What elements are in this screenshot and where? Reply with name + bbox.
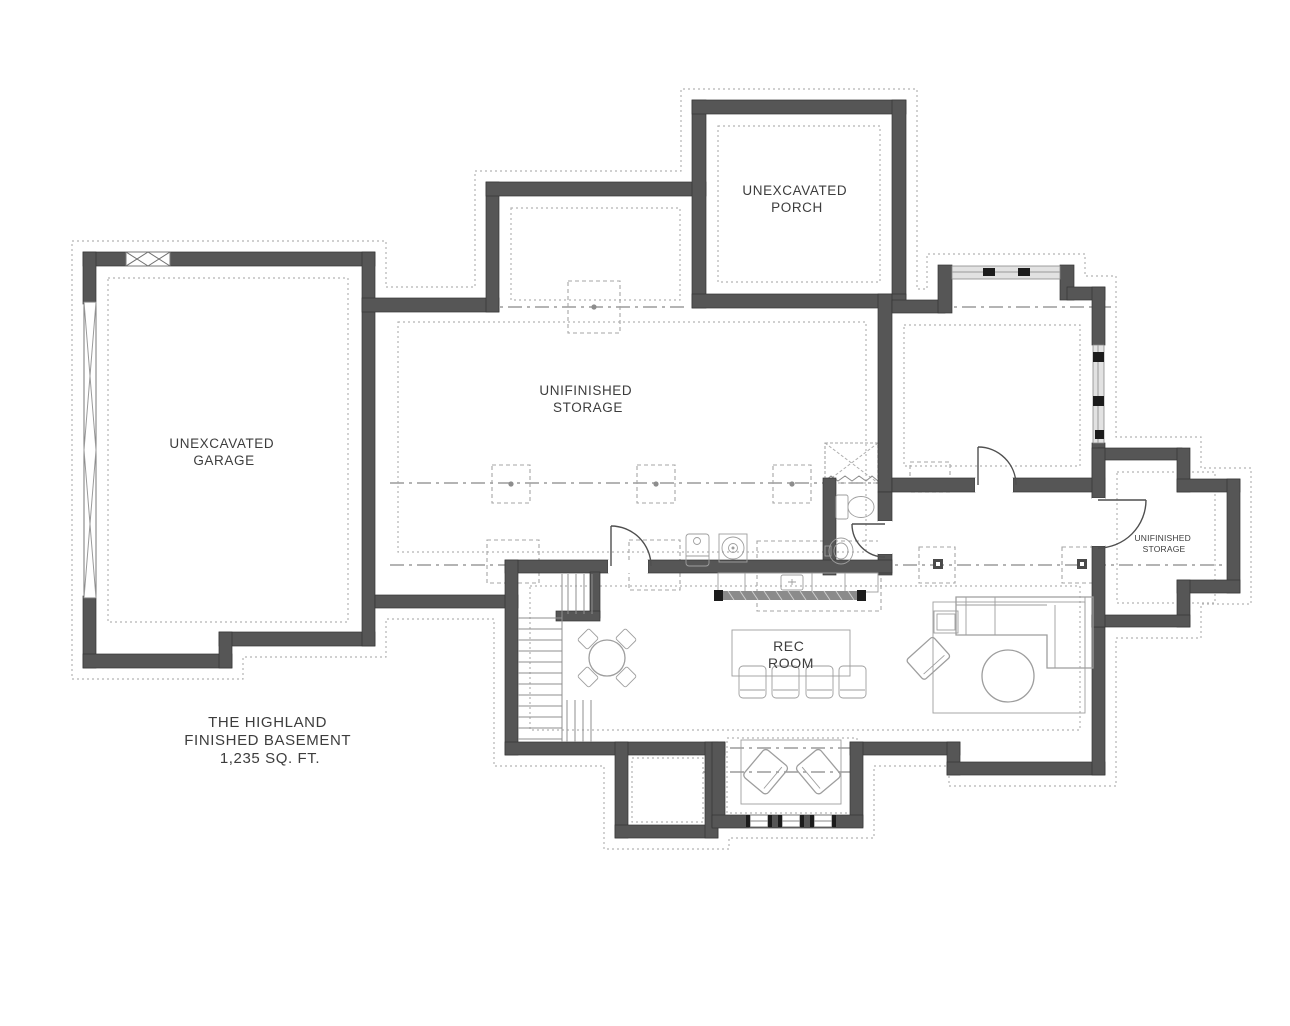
right-wall-window bbox=[1093, 345, 1104, 443]
room-label-garage: UNEXCAVATED GARAGE bbox=[169, 436, 278, 468]
sump-pad bbox=[825, 443, 878, 483]
garage-side-window bbox=[84, 302, 96, 598]
garage-top-window bbox=[126, 252, 170, 266]
stair-treads-upper-flight bbox=[568, 574, 592, 614]
column-footing bbox=[637, 465, 675, 503]
side-table-top bbox=[937, 614, 955, 630]
stair-treads-lower-flight bbox=[567, 700, 591, 742]
bar-counter bbox=[718, 573, 878, 592]
floor-drain bbox=[1077, 559, 1087, 569]
stair-treads-down-flight bbox=[518, 574, 562, 742]
bar-front-halfwall bbox=[714, 590, 866, 601]
game-table bbox=[577, 628, 636, 687]
footing-small-room bbox=[632, 758, 703, 822]
living-area bbox=[906, 597, 1093, 713]
toilet bbox=[836, 495, 874, 519]
floor-drain bbox=[933, 559, 943, 569]
topright-room-door bbox=[975, 447, 1016, 492]
column-footing bbox=[773, 465, 811, 503]
bay-window bbox=[952, 266, 1060, 279]
footing-topright-room bbox=[904, 325, 1080, 466]
staircase bbox=[518, 574, 592, 742]
bar-area bbox=[714, 573, 878, 698]
bay-bottom-windows bbox=[746, 815, 836, 827]
footing-storage-main bbox=[398, 322, 866, 552]
room-label-storage-main: UNIFINISHED STORAGE bbox=[539, 383, 636, 415]
floor-plan-page: UNEXCAVATED GARAGE UNEXCAVATED PORCH UNI… bbox=[0, 0, 1290, 1026]
room-label-rec-room: REC ROOM bbox=[768, 638, 814, 671]
floor-plan-svg: UNEXCAVATED GARAGE UNEXCAVATED PORCH UNI… bbox=[0, 0, 1290, 1026]
bar-sink bbox=[781, 575, 803, 590]
furnace bbox=[719, 534, 747, 562]
room-label-storage-right: UNIFINISHED STORAGE bbox=[1134, 533, 1193, 554]
room-label-porch: UNEXCAVATED PORCH bbox=[742, 183, 851, 215]
column-footing bbox=[492, 465, 530, 503]
sectional-sofa bbox=[956, 597, 1093, 668]
plan-title: THE HIGHLAND FINISHED BASEMENT 1,235 SQ.… bbox=[184, 714, 355, 767]
accent-chair bbox=[906, 636, 951, 680]
footing-bay bbox=[727, 738, 857, 813]
footing-storage-bump bbox=[511, 208, 680, 300]
round-ottoman bbox=[982, 650, 1034, 702]
